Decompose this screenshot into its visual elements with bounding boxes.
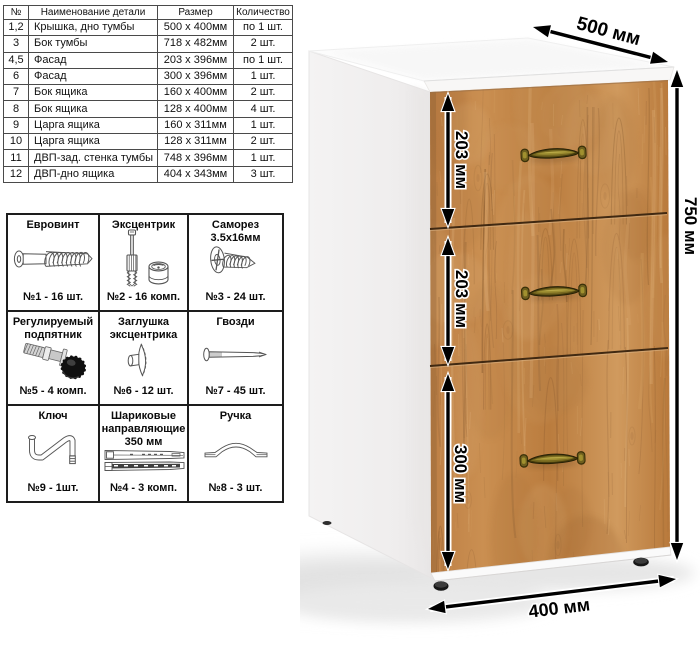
svg-text:300 мм: 300 мм xyxy=(451,445,470,503)
svg-text:203 мм: 203 мм xyxy=(452,131,471,189)
svg-text:203 мм: 203 мм xyxy=(452,270,471,328)
svg-text:750 мм: 750 мм xyxy=(681,197,700,255)
